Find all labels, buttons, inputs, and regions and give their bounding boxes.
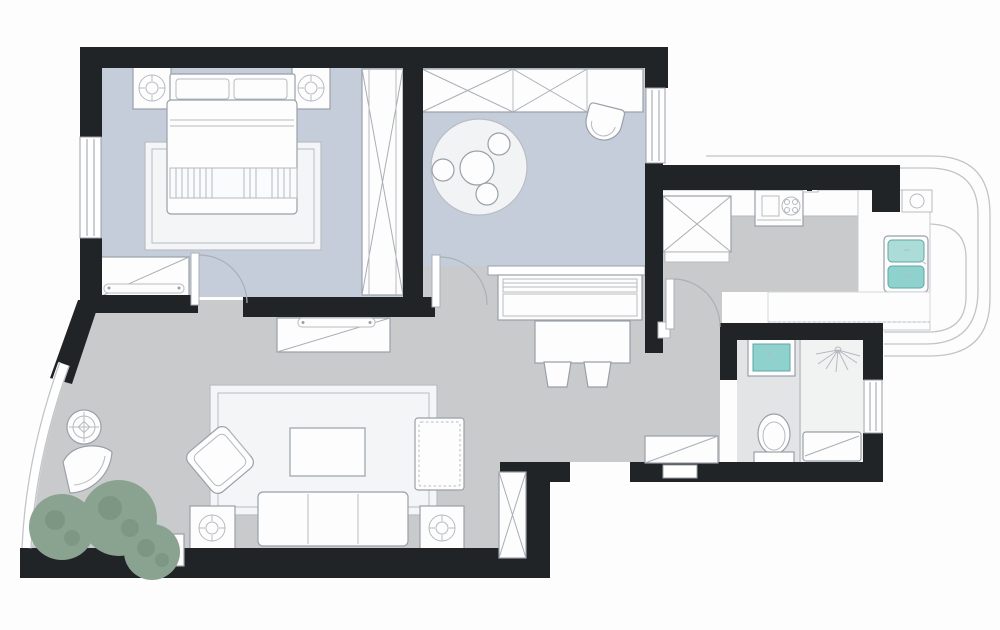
stool [488,133,510,155]
pillow-right [234,79,287,99]
window-entry-slot [663,465,697,478]
x-fridge-cabinet [663,196,731,262]
wall-study-pillar [645,47,668,88]
wall-bath-left-stub [720,323,737,380]
ottoman [415,418,464,490]
lower-sill-counter [768,292,930,322]
window-study-right [646,88,665,163]
double-bed [167,74,297,214]
coffee-table [290,428,365,476]
tv-screen [298,318,375,327]
console-piano [498,275,642,320]
side-table-left [190,506,235,551]
double-sink [884,236,928,292]
dining-stool [544,362,571,387]
wall-bedroom-bottom-left [93,295,198,313]
x-wardrobe [362,69,403,295]
stool [432,159,454,181]
round-table [460,151,494,185]
water-heater [902,190,932,212]
closet-band [422,69,643,112]
x-storage-cabinet [499,472,526,558]
window-bedroom-left [80,137,101,238]
wall-bottom-main [20,548,550,578]
bed-blanket-stripes [170,168,297,198]
side-table-right [420,506,464,551]
shower-tray [803,432,861,461]
tv-cabinet [277,318,390,352]
stove-cooktop [755,190,803,226]
vanity-sink [748,336,795,376]
wall-kitchen-top [645,165,885,190]
stool [476,183,498,205]
wall-top [80,47,650,68]
wall-bedroom-study-divider [403,56,423,302]
wall-bath-right-upper [863,333,883,380]
wall-bath-top [720,323,883,340]
shoe-cabinet [645,436,718,463]
three-seat-sofa [258,492,408,546]
dining-stool [584,362,611,387]
floor-plan-canvas [0,0,1000,630]
dresser-tv [97,257,189,298]
wall-kitchen-pillar-b [872,188,900,212]
wall-left-upper [80,47,102,137]
window-bath-right [864,380,882,433]
dining-table [535,321,630,363]
floor-plan-svg [0,0,1000,630]
pillow-left [176,79,229,99]
wall-kitchen-pillar-a [863,165,900,190]
round-lamp-table [67,410,101,444]
half-wall [488,266,645,275]
